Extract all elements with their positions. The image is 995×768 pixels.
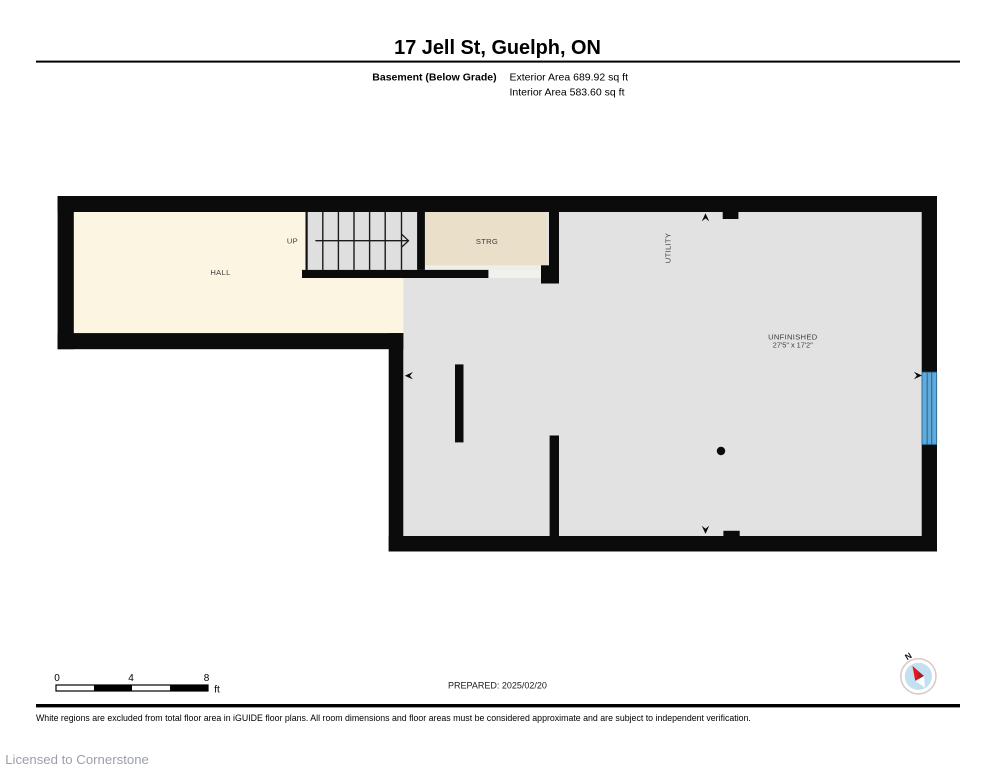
svg-text:UTILITY: UTILITY <box>663 233 672 263</box>
svg-text:Basement (Below Grade): Basement (Below Grade) <box>372 72 496 84</box>
svg-text:ft: ft <box>214 685 220 696</box>
svg-text:27'5" x 17'2": 27'5" x 17'2" <box>773 341 813 350</box>
svg-text:4: 4 <box>128 673 134 684</box>
svg-text:PREPARED: 2025/02/20: PREPARED: 2025/02/20 <box>448 681 547 691</box>
svg-text:UP: UP <box>287 237 298 246</box>
svg-text:Licensed to Cornerstone: Licensed to Cornerstone <box>5 752 149 767</box>
svg-text:17 Jell St, Guelph, ON: 17 Jell St, Guelph, ON <box>394 37 601 59</box>
svg-text:0: 0 <box>54 673 60 684</box>
svg-text:STRG: STRG <box>476 237 498 246</box>
svg-text:HALL: HALL <box>210 268 230 277</box>
svg-text:8: 8 <box>204 673 210 684</box>
svg-text:Interior Area 583.60 sq ft: Interior Area 583.60 sq ft <box>510 87 625 99</box>
svg-text:White regions are excluded fro: White regions are excluded from total fl… <box>36 713 751 723</box>
svg-text:Exterior Area 689.92 sq ft: Exterior Area 689.92 sq ft <box>510 72 629 84</box>
